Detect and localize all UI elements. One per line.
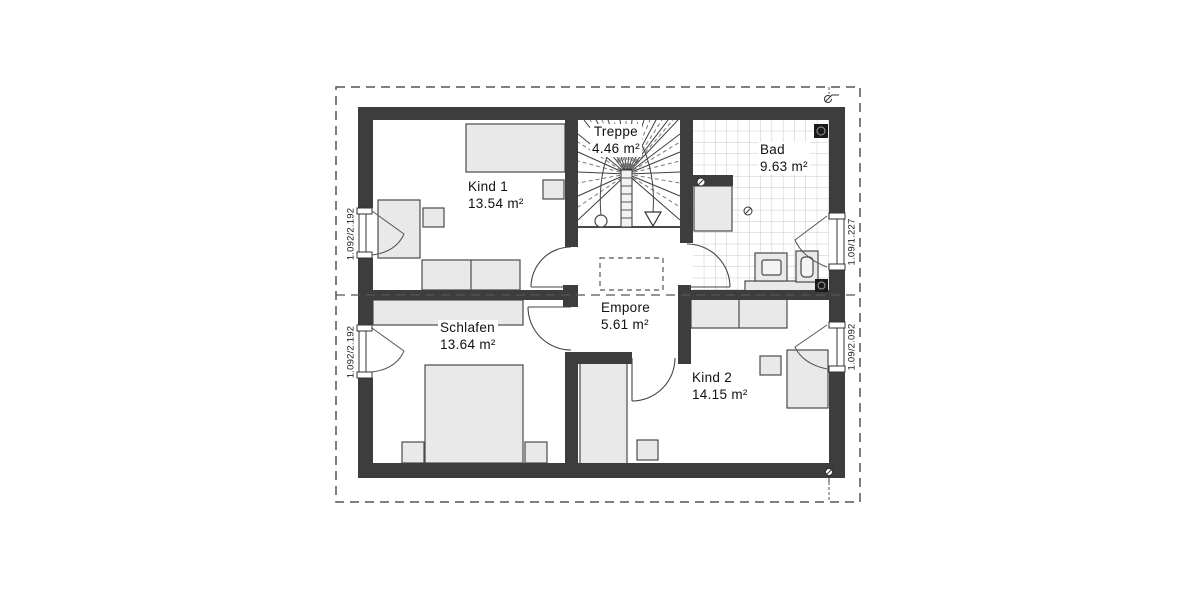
wall-outer-top [358,107,845,120]
stair-direction-arrow [645,212,661,226]
room-name: Treppe [594,124,638,139]
shower-bad [694,186,732,231]
room-name: Kind 2 [692,370,732,385]
room-area: 5.61 m² [601,317,649,332]
empore-opening-dashed [600,258,663,290]
wall-outer-bottom [358,463,845,478]
nightstand-schlafen-left [402,442,424,463]
wall-outer-left [358,107,373,478]
room-area: 14.15 m² [692,387,748,402]
door-schlafen [528,307,571,350]
window-dim-schlafen: 1.092/2.192 [346,326,357,378]
room-area: 9.63 m² [760,159,808,174]
wall-empore-bottom [576,352,632,364]
door-kind2 [632,358,675,401]
room-area: 13.54 m² [468,196,524,211]
desk-kind2 [787,350,828,408]
desk-kind1 [378,200,420,258]
floorplan-canvas: Kind 1 13.54 m² Treppe 4.46 m² Bad 9.63 … [0,0,1200,600]
room-area: 4.46 m² [592,141,640,156]
room-area: 13.64 m² [440,337,496,352]
bed-schlafen [425,365,523,463]
wall-treppe-bad [680,120,693,243]
washbasin-bowl [762,260,781,275]
wall-schlafen-kind2 [565,352,578,463]
window-schlafen [357,325,404,378]
window-dim-kind2: 1.09/2.092 [847,324,858,371]
wall-outer-right [829,107,845,478]
room-label-empore: Empore 5.61 m² [599,300,652,333]
toilet-bowl [801,257,813,277]
room-name: Kind 1 [468,179,508,194]
window-dim-bad: 1.09/1.227 [847,219,858,266]
window-dim-kind1: 1.092/2.192 [346,208,357,260]
wardrobe-kind2 [580,363,627,465]
stair-start-circle [595,215,607,227]
room-label-treppe: Treppe 4.46 m² [590,124,642,157]
room-name: Schlafen [440,320,495,335]
room-label-bad: Bad 9.63 m² [758,142,810,175]
pipe-shaft-bottom-icon [815,279,828,292]
bed-kind1 [466,124,565,172]
floor-drain-icon [697,178,705,186]
floor-drain-icon-2 [744,207,752,215]
nightstand-kind1 [543,180,564,199]
room-label-schlafen: Schlafen 13.64 m² [438,320,498,353]
room-label-kind2: Kind 2 14.15 m² [690,370,750,403]
chair-kind1 [423,208,444,227]
wall-kind1-treppe [565,120,578,247]
chair-kind2 [760,356,781,375]
room-name: Bad [760,142,785,157]
stool-kind2 [637,440,658,460]
roof-drain-top-icon [825,95,840,103]
room-label-kind1: Kind 1 13.54 m² [466,179,526,212]
pipe-shaft-top-icon [814,124,828,138]
nightstand-schlafen-right [525,442,547,463]
room-name: Empore [601,300,650,315]
